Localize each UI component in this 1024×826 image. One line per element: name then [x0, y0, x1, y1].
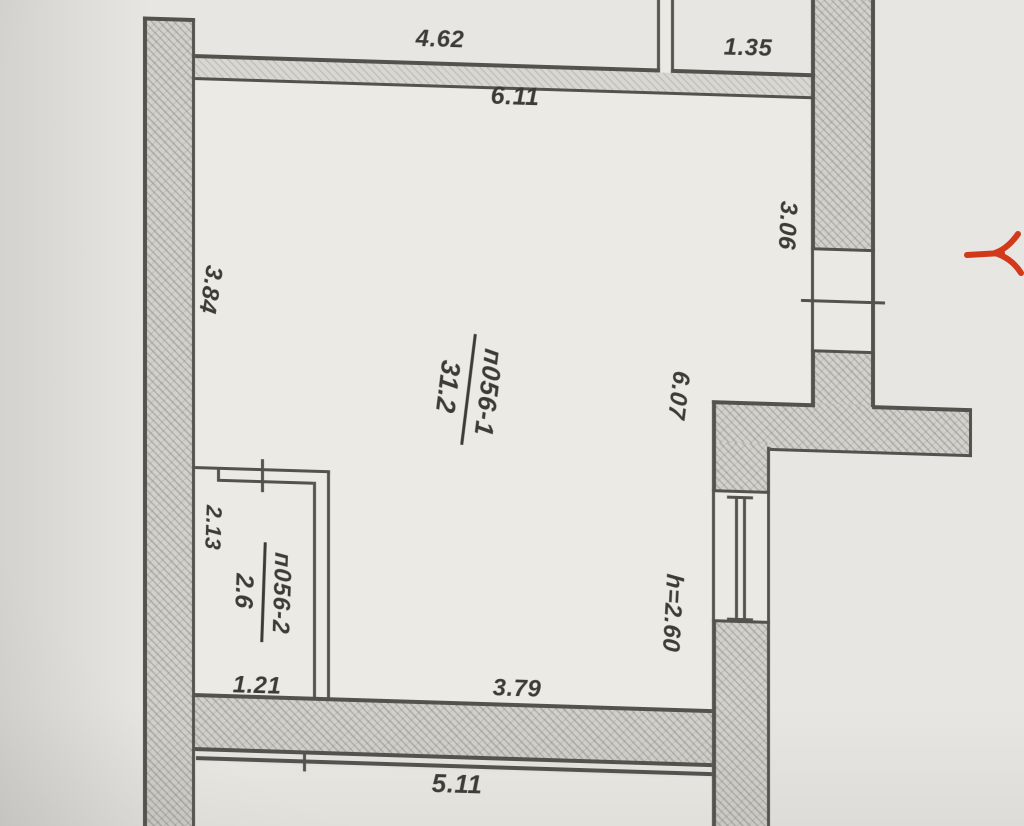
room-1-label: п056-1 31.2 — [425, 328, 510, 450]
door-opening — [715, 489, 767, 624]
floor-plan-photo: 4.62 1.35 6.11 3.06 3.84 6.07 2.13 h=2.6… — [0, 0, 1024, 826]
small-room-left-connector — [217, 467, 220, 481]
dimension-6-07: 6.07 — [661, 369, 695, 421]
wall-right-below-window — [811, 352, 875, 409]
wall-left-outer-edge — [143, 16, 147, 826]
door-leaf-line-right — [743, 497, 746, 620]
small-room-right-inner-line — [313, 482, 316, 697]
red-arrow-lower-tail — [995, 253, 1021, 273]
dimension-6-11: 6.11 — [491, 82, 540, 113]
dimension-4-62: 4.62 — [416, 25, 465, 55]
dimension-1-21: 1.21 — [233, 671, 282, 701]
wall-lower-right-upper-seg — [712, 442, 770, 491]
dimension-1-35: 1.35 — [724, 33, 773, 63]
wall-right-upper — [811, 0, 875, 249]
room-2-area: 2.6 — [227, 540, 263, 642]
dimension-3-79: 3.79 — [493, 674, 542, 704]
small-room-door-tick — [261, 459, 264, 492]
room-2-name: п056-2 — [260, 542, 296, 644]
t-bar-right-end-line — [969, 408, 973, 457]
top-stub-wall-fill — [660, 0, 671, 73]
red-arrow-annotation — [950, 215, 1024, 287]
dimension-3-06: 3.06 — [772, 200, 803, 251]
red-arrow-upper-tail — [995, 234, 1018, 253]
dimension-5-11: 5.11 — [432, 768, 483, 801]
top-stub-wall-right-line — [671, 0, 674, 73]
top-stub-wall-left-line — [657, 0, 660, 73]
dimension-2-13: 2.13 — [199, 504, 227, 550]
wall-left — [143, 16, 195, 826]
floor-plan-drawing: 4.62 1.35 6.11 3.06 3.84 6.07 2.13 h=2.6… — [0, 0, 1024, 826]
door-leaf-line-left — [735, 497, 738, 620]
wall-lower-right-outer-edge — [767, 447, 771, 826]
wall-lower-right-lower-seg — [712, 622, 770, 826]
small-room-right-outer-line — [327, 470, 330, 697]
wall-left-inner-edge — [192, 18, 195, 826]
dimension-h-2-60: h=2.60 — [656, 573, 688, 653]
room-2-label: п056-2 2.6 — [227, 540, 296, 644]
bottom-room-tick — [303, 753, 306, 771]
wall-right-outer-edge — [871, 0, 875, 407]
